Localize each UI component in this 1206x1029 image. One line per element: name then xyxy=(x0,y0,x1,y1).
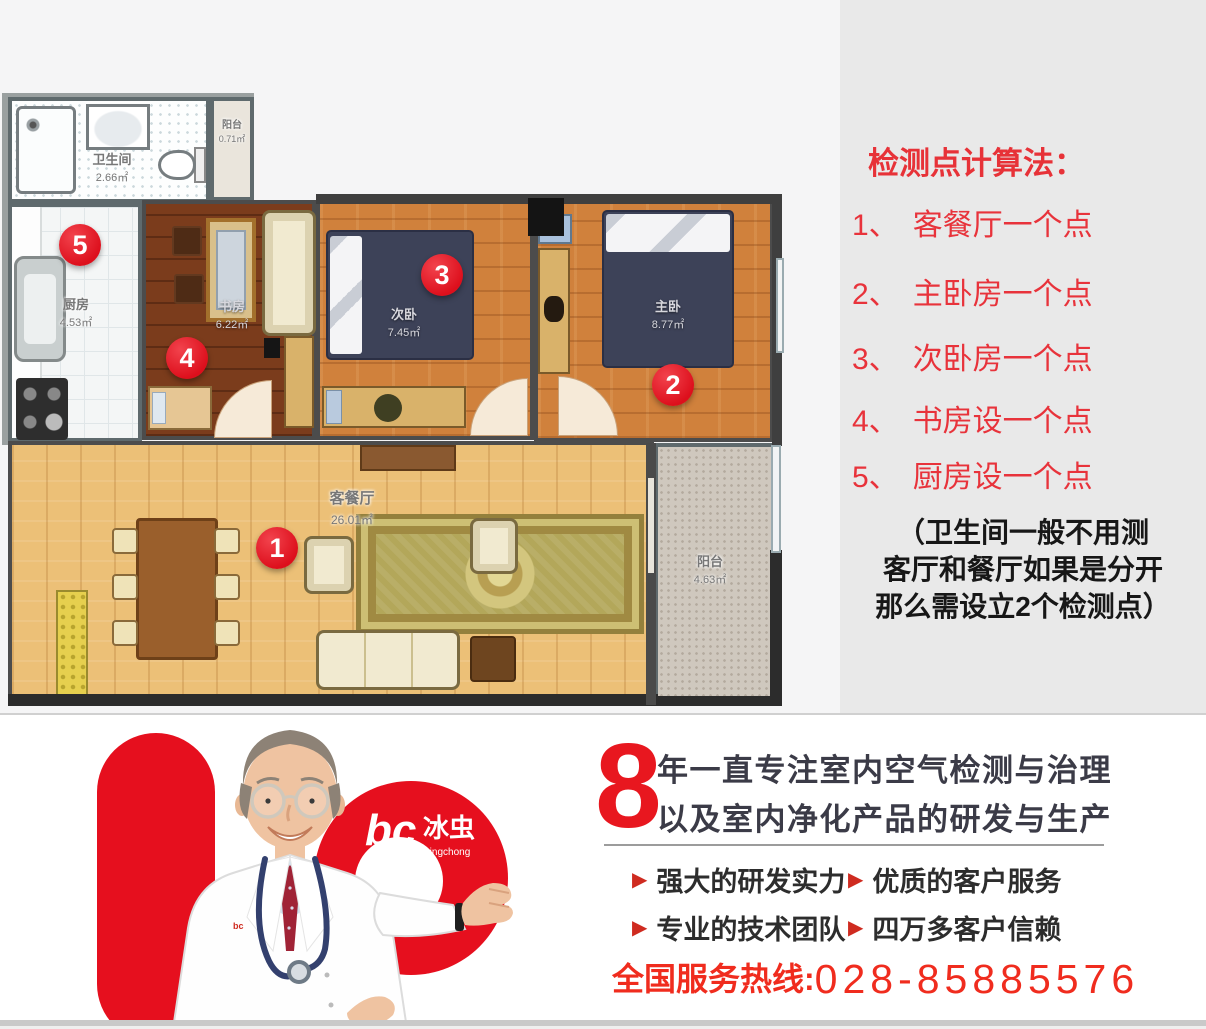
coat-logo: bc xyxy=(233,921,244,931)
dining-chair xyxy=(112,620,138,646)
kitchen-label: 厨房 4.53㎡ xyxy=(28,295,124,331)
marker-5: 5 xyxy=(59,224,101,266)
panel-item-1: 1、 客餐厅一个点 xyxy=(852,200,1093,244)
armchair xyxy=(470,518,518,574)
bathroom-name: 卫生间 xyxy=(64,150,160,170)
panel-item-label: 次卧房一个点 xyxy=(913,334,1093,378)
second-bedroom-name: 次卧 xyxy=(356,305,452,325)
dining-chair xyxy=(112,574,138,600)
balcony-window xyxy=(771,445,781,553)
headline-line2: 以及室内净化产品的研发与生产 xyxy=(657,794,1112,839)
study-area: 6.22㎡ xyxy=(184,317,280,334)
panel-item-label: 厨房设一个点 xyxy=(913,452,1093,496)
panel-note-line: 客厅和餐厅如果是分开 xyxy=(840,551,1206,588)
bullet-triangle-icon: ▶ xyxy=(632,867,647,892)
master-window xyxy=(776,258,784,353)
wall-balcony-bottom xyxy=(650,696,780,706)
panel-item-label: 客餐厅一个点 xyxy=(913,200,1093,244)
balcony-top-name: 阳台 xyxy=(184,118,280,133)
dining-chair xyxy=(214,620,240,646)
master-bed-pillows xyxy=(606,214,730,252)
master-bedroom-area: 8.77㎡ xyxy=(620,317,716,334)
stove xyxy=(16,378,68,440)
feature-label: 四万多客户信赖 xyxy=(872,908,1061,947)
big-number: 8 xyxy=(595,726,662,846)
bullet-triangle-icon: ▶ xyxy=(848,867,863,892)
room-balcony-top xyxy=(210,97,254,201)
balcony-doorway xyxy=(648,478,654,573)
tall-cabinet xyxy=(56,590,88,696)
study-chair xyxy=(172,226,202,256)
bathroom-area: 2.66㎡ xyxy=(64,170,160,187)
master-bedroom-name: 主卧 xyxy=(620,297,716,317)
study-label: 书房 6.22㎡ xyxy=(184,297,280,333)
study-name: 书房 xyxy=(184,297,280,317)
marker-2: 2 xyxy=(652,364,694,406)
bingchong-logo-zh: 冰虫 xyxy=(423,813,475,843)
feature-item: ▶ 四万多客户信赖 xyxy=(848,908,1061,947)
wall-living-bottom xyxy=(8,694,658,706)
feature-label: 优质的客户服务 xyxy=(872,860,1061,899)
panel-item-num: 1、 xyxy=(852,200,899,244)
hotline: 全国服务热线: 028-85885576 xyxy=(612,956,1139,1002)
second-bedroom-chair xyxy=(374,394,402,422)
bullet-triangle-icon: ▶ xyxy=(632,915,647,940)
bingchong-logo-mark: bc xyxy=(365,806,416,855)
panel-item-2: 2、 主卧房一个点 xyxy=(852,269,1093,313)
balcony-top-area: 0.71㎡ xyxy=(184,133,280,147)
living-name: 客餐厅 xyxy=(304,488,400,511)
second-bedroom-area: 7.45㎡ xyxy=(356,325,452,342)
living-area: 26.01㎡ xyxy=(304,511,400,529)
wall-block xyxy=(528,198,564,236)
panel-item-4: 4、 书房设一个点 xyxy=(852,396,1093,440)
balcony-bottom-name: 阳台 xyxy=(662,552,758,572)
dining-chair xyxy=(214,528,240,554)
marker-3: 3 xyxy=(421,254,463,296)
study-bed-pillow xyxy=(152,392,166,424)
dining-chair xyxy=(214,574,240,600)
panel-item-num: 5、 xyxy=(852,452,899,496)
headline-line1: 年一直专注室内空气检测与治理 xyxy=(657,745,1112,790)
panel-item-label: 主卧房一个点 xyxy=(913,269,1093,313)
dining-table xyxy=(136,518,218,660)
panel-item-num: 2、 xyxy=(852,269,899,313)
balcony-bottom-label: 阳台 4.63㎡ xyxy=(662,552,758,588)
feature-item: ▶ 专业的技术团队 xyxy=(632,908,845,947)
feature-label: 专业的技术团队 xyxy=(656,908,845,947)
feature-item: ▶ 优质的客户服务 xyxy=(848,860,1061,899)
study-desk xyxy=(284,336,314,428)
second-bedroom-label: 次卧 7.45㎡ xyxy=(356,305,452,341)
feature-item: ▶ 强大的研发实力 xyxy=(632,860,845,899)
study-tv xyxy=(264,338,280,358)
bingchong-logo-en: Bingchong xyxy=(423,847,470,858)
master-bedroom-label: 主卧 8.77㎡ xyxy=(620,297,716,333)
dining-chair xyxy=(112,528,138,554)
panel-title: 检测点计算法： xyxy=(868,138,1085,183)
kitchen-area: 4.53㎡ xyxy=(28,315,124,332)
divider-line xyxy=(604,844,1104,846)
tv-cabinet xyxy=(360,445,456,471)
wall-balcony-right xyxy=(770,550,782,706)
master-wardrobe-handle xyxy=(544,296,564,322)
hotline-number: 028-85885576 xyxy=(815,956,1139,1002)
panel-note-line: 那么需设立2个检测点） xyxy=(840,588,1206,625)
panel-item-3: 3、 次卧房一个点 xyxy=(852,334,1093,378)
marker-4: 4 xyxy=(166,337,208,379)
second-bedroom-cabinet xyxy=(326,390,342,424)
page: 卫生间 2.66㎡ 阳台 0.71㎡ 厨房 4.53㎡ 书房 6.22㎡ 次卧 … xyxy=(0,0,1206,1029)
coffee-table xyxy=(470,636,516,682)
panel-item-5: 5、 厨房设一个点 xyxy=(852,452,1093,496)
doctor-illustration: bc 冰虫 Bingchong xyxy=(85,713,515,1029)
panel-note-line: （卫生间一般不用测 xyxy=(840,514,1206,551)
bullet-triangle-icon: ▶ xyxy=(848,915,863,940)
marker-1: 1 xyxy=(256,527,298,569)
bathroom-sink xyxy=(86,104,150,150)
hotline-label: 全国服务热线: xyxy=(612,956,815,1002)
armchair xyxy=(304,536,354,594)
balcony-bottom-area: 4.63㎡ xyxy=(662,572,758,589)
panel-item-num: 3、 xyxy=(852,334,899,378)
kitchen-name: 厨房 xyxy=(28,295,124,315)
balcony-top-label: 阳台 0.71㎡ xyxy=(184,118,280,147)
feature-label: 强大的研发实力 xyxy=(656,860,845,899)
bathroom-label: 卫生间 2.66㎡ xyxy=(64,150,160,186)
panel-item-label: 书房设一个点 xyxy=(913,396,1093,440)
panel-item-num: 4、 xyxy=(852,396,899,440)
living-label: 客餐厅 26.01㎡ xyxy=(304,488,400,529)
sofa xyxy=(316,630,460,690)
panel-note: （卫生间一般不用测 客厅和餐厅如果是分开 那么需设立2个检测点） xyxy=(840,514,1206,625)
toilet xyxy=(158,150,196,180)
